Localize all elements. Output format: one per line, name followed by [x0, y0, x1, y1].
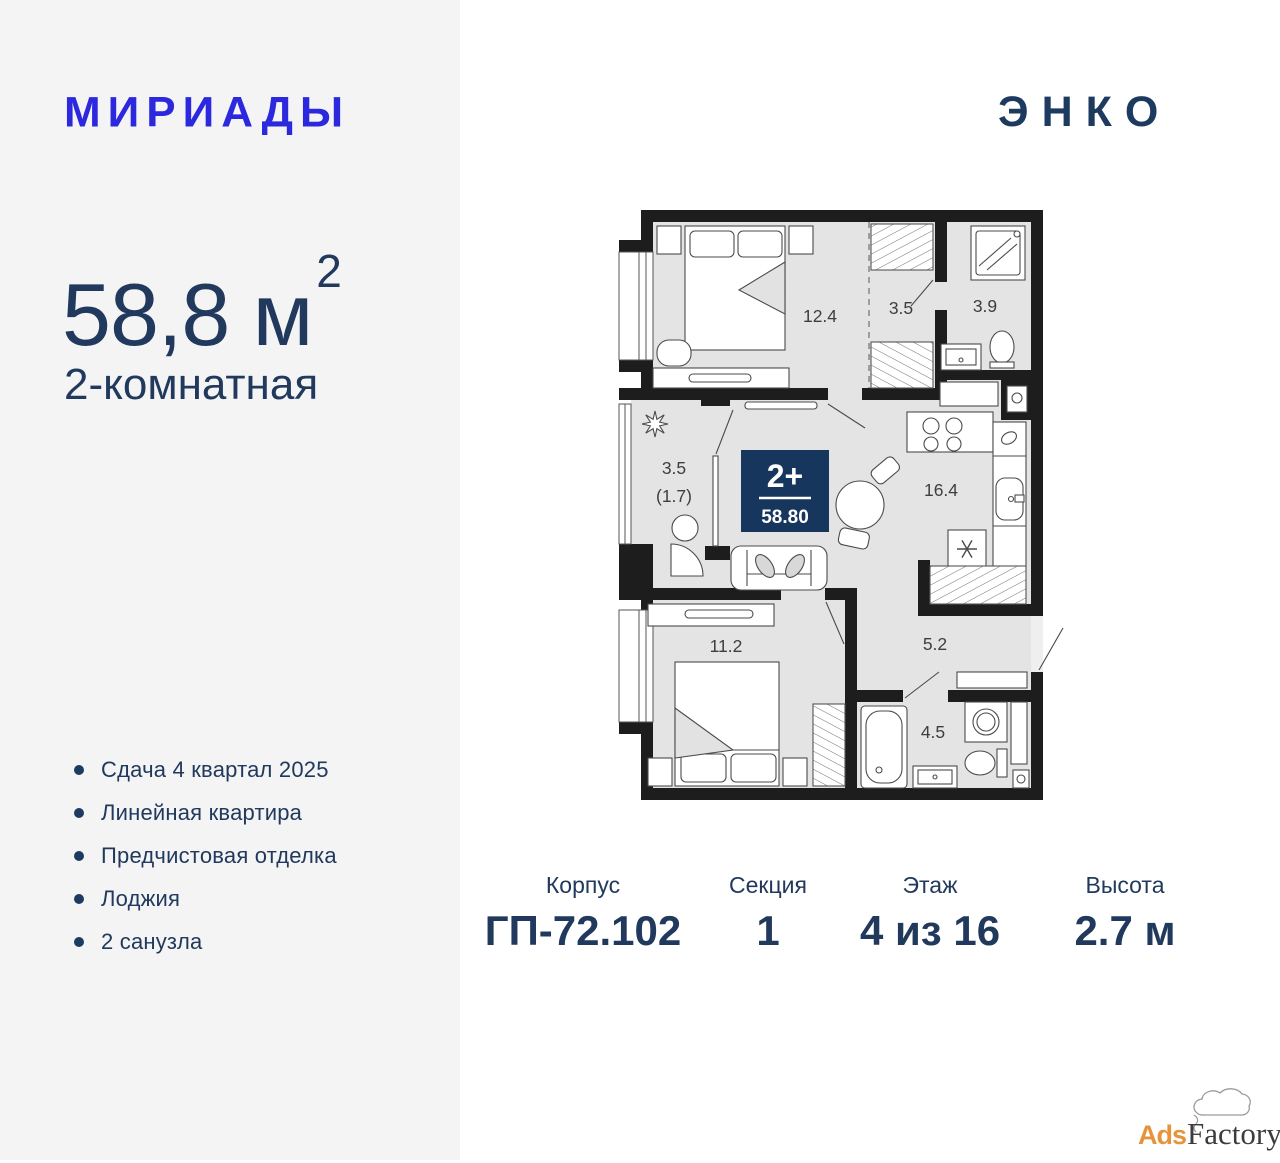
room-label-wardrobe: 3.5: [889, 298, 913, 318]
watermark-ads: Ads: [1138, 1120, 1186, 1150]
developer-logo: ЭНКО: [998, 88, 1171, 137]
right-panel: ЭНКО: [460, 0, 1280, 1160]
feature-label: Предчистовая отделка: [101, 843, 337, 869]
room-label-loggia: 3.5: [662, 458, 686, 478]
bullet-dot-icon: [74, 808, 84, 818]
bullet-dot-icon: [74, 894, 84, 904]
badge-rooms: 2+: [767, 458, 803, 494]
apartment-area: 58,8 м2: [62, 244, 341, 366]
detail-value: 4 из 16: [820, 907, 1040, 955]
feature-label: Лоджия: [101, 886, 180, 912]
room-label-bedroom2: 11.2: [710, 636, 743, 656]
area-superscript: 2: [316, 245, 341, 297]
list-item: Сдача 4 квартал 2025: [74, 748, 337, 791]
apartment-badge: 2+ 58.80: [741, 450, 829, 532]
list-item: Предчистовая отделка: [74, 834, 337, 877]
list-item: Линейная квартира: [74, 791, 337, 834]
bullet-dot-icon: [74, 851, 84, 861]
left-panel: МИРИАДЫ 58,8 м2 2-комнатная Сдача 4 квар…: [0, 0, 460, 1160]
bullet-dot-icon: [74, 765, 84, 775]
feature-label: Линейная квартира: [101, 800, 302, 826]
list-item: Лоджия: [74, 877, 337, 920]
detail-ceiling-height: Высота 2.7 м: [1015, 872, 1235, 955]
detail-value: 2.7 м: [1015, 907, 1235, 955]
apartment-details: Корпус ГП-72.102 Секция 1 Этаж 4 из 16 В…: [460, 872, 1280, 982]
bullet-dot-icon: [74, 937, 84, 947]
flyer: МИРИАДЫ 58,8 м2 2-комнатная Сдача 4 квар…: [0, 0, 1280, 1160]
feature-label: 2 санузла: [101, 929, 202, 955]
room-label-bath2: 4.5: [921, 722, 945, 742]
room-label-bath1: 3.9: [973, 296, 997, 316]
list-item: 2 санузла: [74, 920, 337, 963]
badge-area: 58.80: [761, 507, 809, 528]
watermark: AdsFactory: [1138, 1074, 1274, 1158]
watermark-factory: Factory: [1187, 1116, 1280, 1151]
room-label-kitchen: 16.4: [924, 480, 958, 500]
detail-label: Этаж: [820, 872, 1040, 899]
apartment-type: 2-комнатная: [64, 360, 318, 410]
watermark-text: AdsFactory: [1138, 1116, 1280, 1152]
plant-icon: [642, 411, 668, 437]
brand-logo: МИРИАДЫ: [64, 89, 350, 137]
room-label-bedroom1: 12.4: [803, 306, 837, 326]
room-label-hall: 5.2: [923, 634, 947, 654]
feature-list: Сдача 4 квартал 2025 Линейная квартира П…: [74, 748, 337, 963]
floor-plan: 12.4 3.5 3.9 16.4 3.5 (1.7) 11.2 5.2 4.5…: [613, 210, 1065, 800]
area-value: 58,8 м: [62, 265, 312, 364]
detail-floor: Этаж 4 из 16: [820, 872, 1040, 955]
floor-plan-drawing: 12.4 3.5 3.9 16.4 3.5 (1.7) 11.2 5.2 4.5…: [613, 210, 1065, 800]
room-label-loggia-reduced: (1.7): [656, 486, 692, 506]
detail-label: Высота: [1015, 872, 1235, 899]
feature-label: Сдача 4 квартал 2025: [101, 757, 329, 783]
